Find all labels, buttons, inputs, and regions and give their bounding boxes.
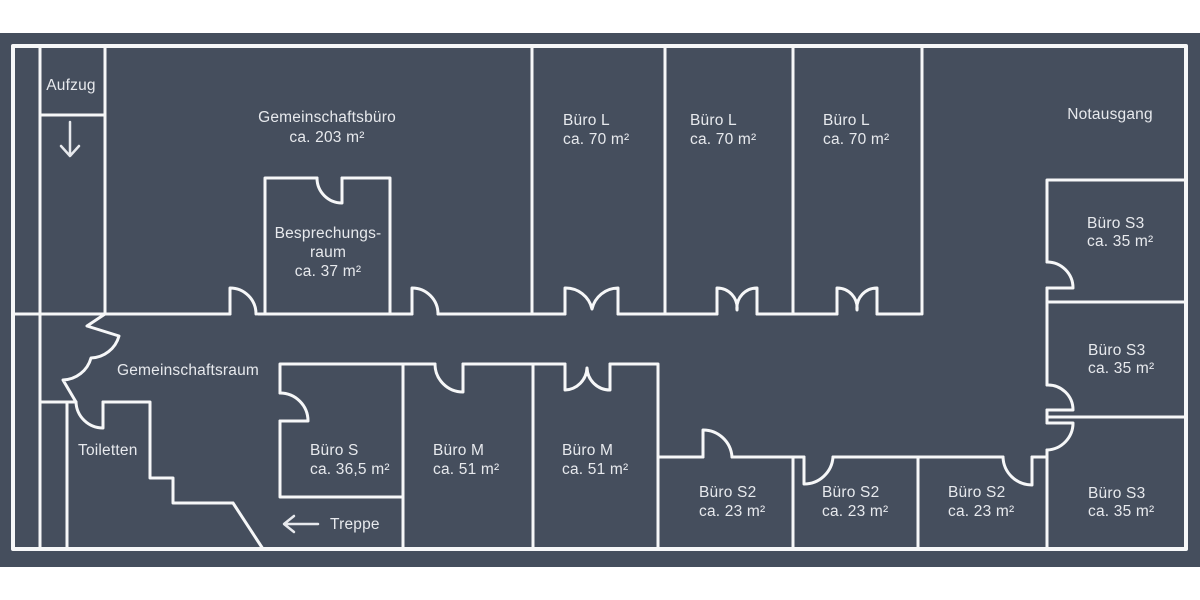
room-label-buero-s2-2: Büro S2 [822, 484, 879, 501]
room-area-besprechungsraum: ca. 37 m² [295, 263, 361, 280]
room-label-besprechungsraum-line1: Besprechungs- [275, 225, 382, 242]
room-label-treppe: Treppe [330, 516, 380, 533]
room-label-buero-s2-3: Büro S2 [948, 484, 1005, 501]
room-area-gemeinschaftsbuero: ca. 203 m² [289, 129, 364, 146]
room-area-buero-s3-3: ca. 35 m² [1088, 503, 1154, 520]
room-label-gemeinschaftsbuero: Gemeinschaftsbüro [258, 109, 396, 126]
room-label-buero-s3-3: Büro S3 [1088, 485, 1145, 502]
room-label-buero-l-3: Büro L [823, 112, 870, 129]
room-label-buero-s2-1: Büro S2 [699, 484, 756, 501]
room-label-gemeinschaftsraum: Gemeinschaftsraum [117, 362, 259, 379]
room-label-buero-l-2: Büro L [690, 112, 737, 129]
room-label-buero-m-1: Büro M [433, 442, 484, 459]
floor-plan-drawing: Aufzug Gemeinschaftsbüro ca. 203 m² Besp… [0, 0, 1200, 600]
room-area-buero-s2-1: ca. 23 m² [699, 503, 765, 520]
room-label-buero-l-1: Büro L [563, 112, 610, 129]
room-area-buero-l-1: ca. 70 m² [563, 131, 629, 148]
room-area-buero-s2-3: ca. 23 m² [948, 503, 1014, 520]
room-area-buero-m-2: ca. 51 m² [562, 461, 628, 478]
elevator-down-arrow-icon [61, 122, 79, 156]
room-label-aufzug: Aufzug [46, 77, 95, 94]
floor-plan-page: Aufzug Gemeinschaftsbüro ca. 203 m² Besp… [0, 0, 1200, 600]
room-area-buero-s3-2: ca. 35 m² [1088, 360, 1154, 377]
room-label-buero-s: Büro S [310, 442, 359, 459]
room-area-buero-s: ca. 36,5 m² [310, 461, 390, 478]
room-area-buero-l-2: ca. 70 m² [690, 131, 756, 148]
room-label-notausgang: Notausgang [1067, 106, 1153, 123]
room-area-buero-l-3: ca. 70 m² [823, 131, 889, 148]
room-area-buero-s2-2: ca. 23 m² [822, 503, 888, 520]
room-label-besprechungsraum-line2: raum [310, 244, 346, 261]
room-label-buero-s3-2: Büro S3 [1088, 342, 1145, 359]
room-label-toiletten: Toiletten [78, 442, 138, 459]
stairs-left-arrow-icon [284, 516, 318, 532]
room-area-buero-s3-1: ca. 35 m² [1087, 233, 1153, 250]
room-area-buero-m-1: ca. 51 m² [433, 461, 499, 478]
room-label-buero-m-2: Büro M [562, 442, 613, 459]
room-label-buero-s3-1: Büro S3 [1087, 215, 1144, 232]
